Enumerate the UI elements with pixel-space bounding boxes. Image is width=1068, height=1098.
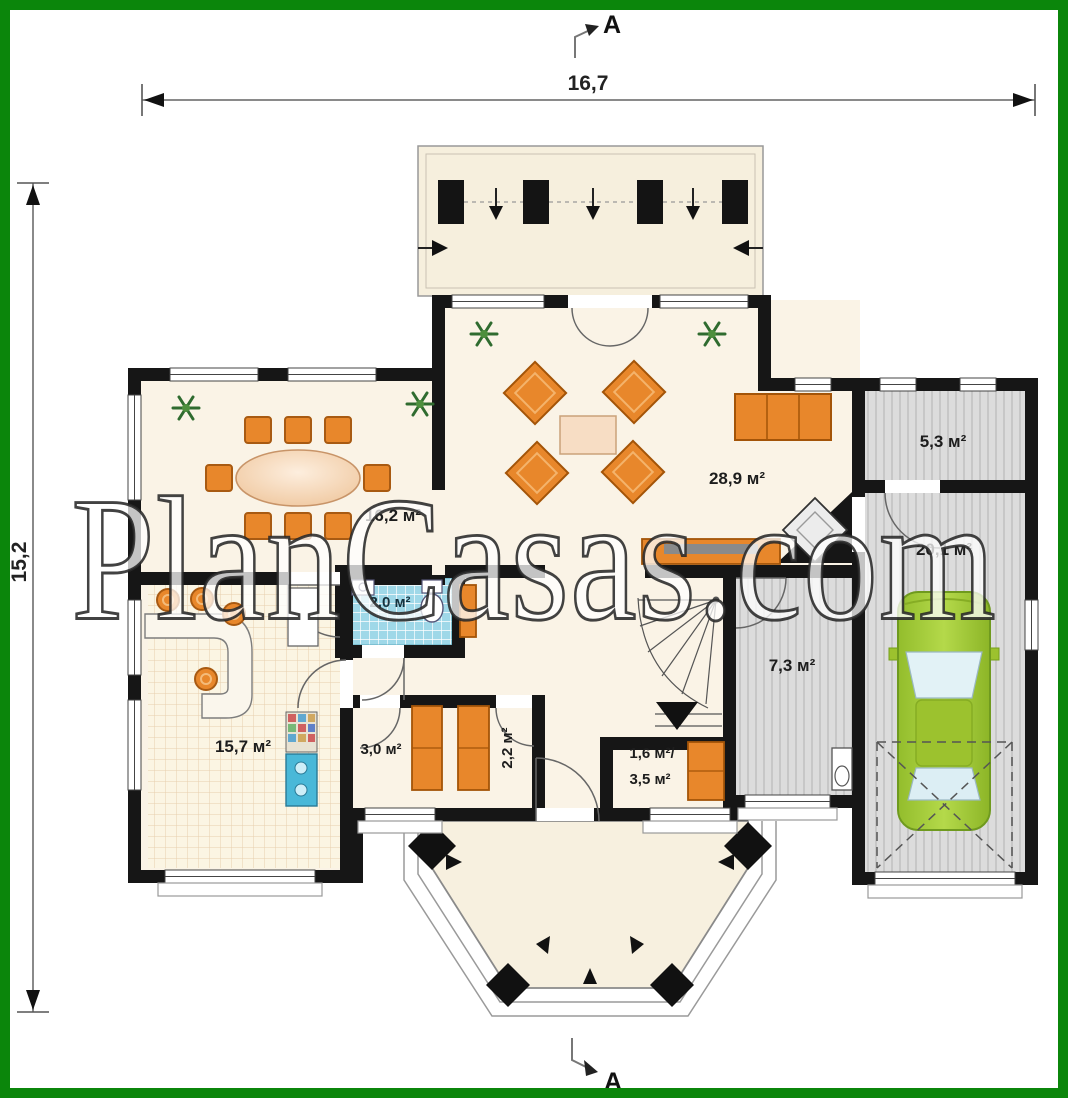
hall-wc-fixture: [832, 748, 852, 790]
coffee-table: [560, 416, 616, 454]
porch: [404, 821, 776, 1016]
wardrobe-area-label: 2,2 м²: [499, 727, 516, 768]
hall-area-label: 7,3 м²: [769, 656, 816, 675]
section-marker-bottom: A: [572, 1038, 622, 1096]
toilet-tank: [422, 580, 442, 593]
wc-area-label: 2,0 м²: [369, 594, 410, 611]
mosaic-worktop: [286, 712, 317, 752]
toilet-bowl: [421, 594, 443, 622]
section-marker-top-label: A: [603, 11, 621, 39]
kitchen-sink: [286, 754, 317, 806]
storage-area-label: 5,3 м²: [920, 432, 967, 451]
dining-area-label: 16,2 м²: [365, 506, 421, 525]
dimension-top-label: 16,7: [568, 72, 609, 95]
kitchen-area-label: 15,7 м²: [215, 737, 271, 756]
understairs-area-label-bottom: 3,5 м²: [629, 771, 670, 788]
wc-sink: [352, 580, 374, 595]
dining-table: [236, 450, 360, 506]
understairs-area-label-top: 1,6 м²/: [629, 745, 675, 762]
kitchen-counter: [288, 588, 318, 646]
terrace: [418, 146, 763, 296]
dimension-left-label: 15,2: [8, 542, 31, 583]
dimension-top: 16,7: [142, 72, 1035, 116]
section-marker-top: A: [575, 11, 621, 58]
pantry-area-label: 3,0 м²: [360, 741, 401, 758]
tall-cupboard: [460, 585, 476, 637]
tv: [664, 544, 758, 554]
floor-plan-page: 16,7 15,2 A A: [0, 0, 1068, 1098]
dimension-left: 15,2: [8, 183, 49, 1012]
garage-area-label: 20,1 м²: [916, 540, 972, 559]
sideboard: [735, 394, 831, 440]
car: [889, 592, 999, 830]
living-area-label: 28,9 м²: [709, 469, 765, 488]
section-marker-bottom-label: A: [604, 1068, 622, 1096]
floor-plan-drawing: 16,7 15,2 A A: [0, 0, 1068, 1098]
